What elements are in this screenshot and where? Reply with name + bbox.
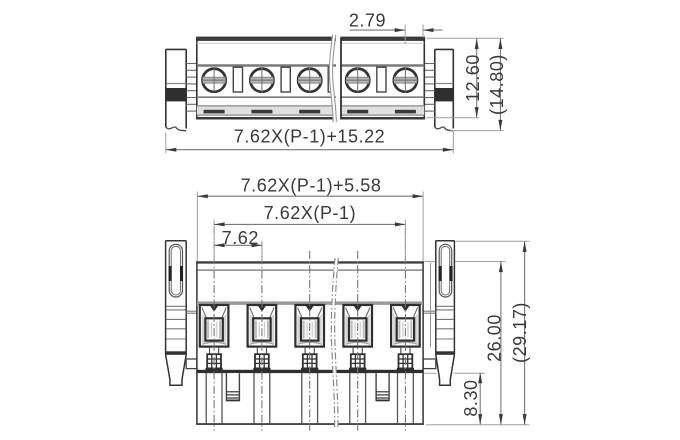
svg-text:(14.80): (14.80) <box>487 54 507 115</box>
svg-text:8.30: 8.30 <box>461 379 481 416</box>
svg-text:7.62X(P-1): 7.62X(P-1) <box>264 203 357 223</box>
svg-text:2.79: 2.79 <box>349 11 386 31</box>
svg-text:12.60: 12.60 <box>463 54 483 102</box>
svg-text:7.62X(P-1)+15.22: 7.62X(P-1)+15.22 <box>234 126 385 146</box>
svg-text:(29.17): (29.17) <box>510 302 530 363</box>
svg-text:26.00: 26.00 <box>484 314 504 362</box>
svg-text:7.62X(P-1)+5.58: 7.62X(P-1)+5.58 <box>241 176 382 196</box>
svg-text:7.62: 7.62 <box>222 228 259 248</box>
